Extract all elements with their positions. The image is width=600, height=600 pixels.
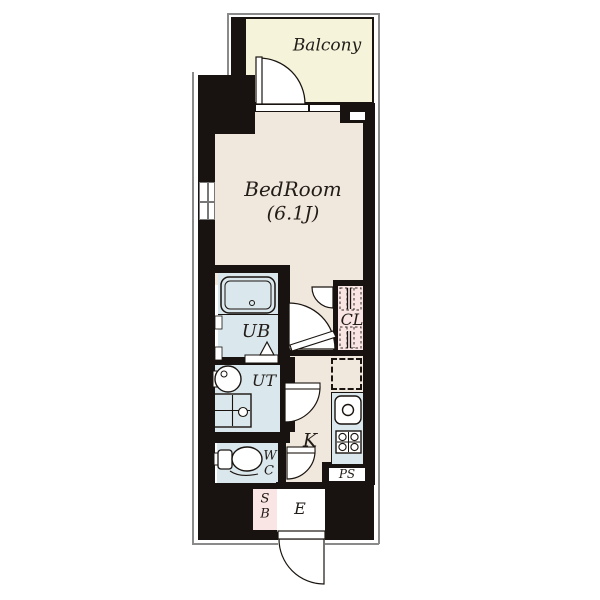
- kitchen-label: K: [303, 432, 317, 451]
- entrance-door-arc: [278, 531, 325, 584]
- shoe-box-label-b: B: [260, 508, 270, 521]
- pipe-space-label: PS: [339, 468, 355, 480]
- floor-plan: Balcony BedRoom (6.1J) UB CL UT K W C PS…: [0, 0, 600, 600]
- unit-bath-label: UB: [242, 323, 270, 341]
- bedroom-size: (6.1J): [267, 205, 320, 224]
- toilet: [214, 447, 262, 475]
- utility-door-arc: [285, 383, 320, 422]
- closet-door-arc: [312, 287, 333, 308]
- toilet-label-c: C: [264, 465, 274, 478]
- toilet-door-arc: [287, 447, 315, 479]
- bedroom-door-arc: [289, 303, 336, 351]
- utility-label: UT: [252, 373, 276, 389]
- toilet-label-w: W: [263, 450, 276, 463]
- entrance-label: E: [294, 501, 306, 517]
- washing-machine-pan: [214, 394, 251, 427]
- kitchen-sink: [335, 396, 361, 424]
- gas-stove: [336, 431, 361, 453]
- bathtub: [218, 277, 278, 315]
- bedroom-label: BedRoom: [244, 179, 341, 199]
- closet-label: CL: [341, 312, 364, 328]
- washbasin: [213, 366, 241, 392]
- shoe-box-label-s: S: [261, 493, 270, 506]
- balcony-door-arc: [256, 57, 305, 104]
- balcony-label: Balcony: [293, 38, 361, 55]
